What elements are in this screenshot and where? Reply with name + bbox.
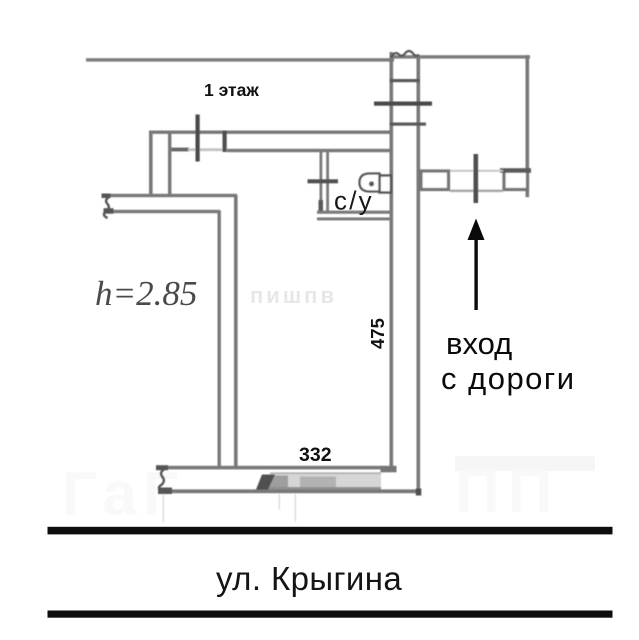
svg-text:1 этаж: 1 этаж: [204, 80, 259, 100]
svg-text:332: 332: [299, 444, 332, 466]
svg-text:вход: вход: [446, 326, 512, 361]
svg-text:пишпв: пишпв: [250, 283, 337, 308]
svg-text:с/у: с/у: [334, 186, 374, 216]
svg-text:475: 475: [367, 318, 388, 349]
svg-text:h=2.85: h=2.85: [95, 274, 197, 313]
svg-text:ул. Крыгина: ул. Крыгина: [216, 560, 402, 597]
svg-text:с дороги: с дороги: [441, 361, 576, 396]
svg-text:ГаГ: ГаГ: [62, 460, 184, 529]
